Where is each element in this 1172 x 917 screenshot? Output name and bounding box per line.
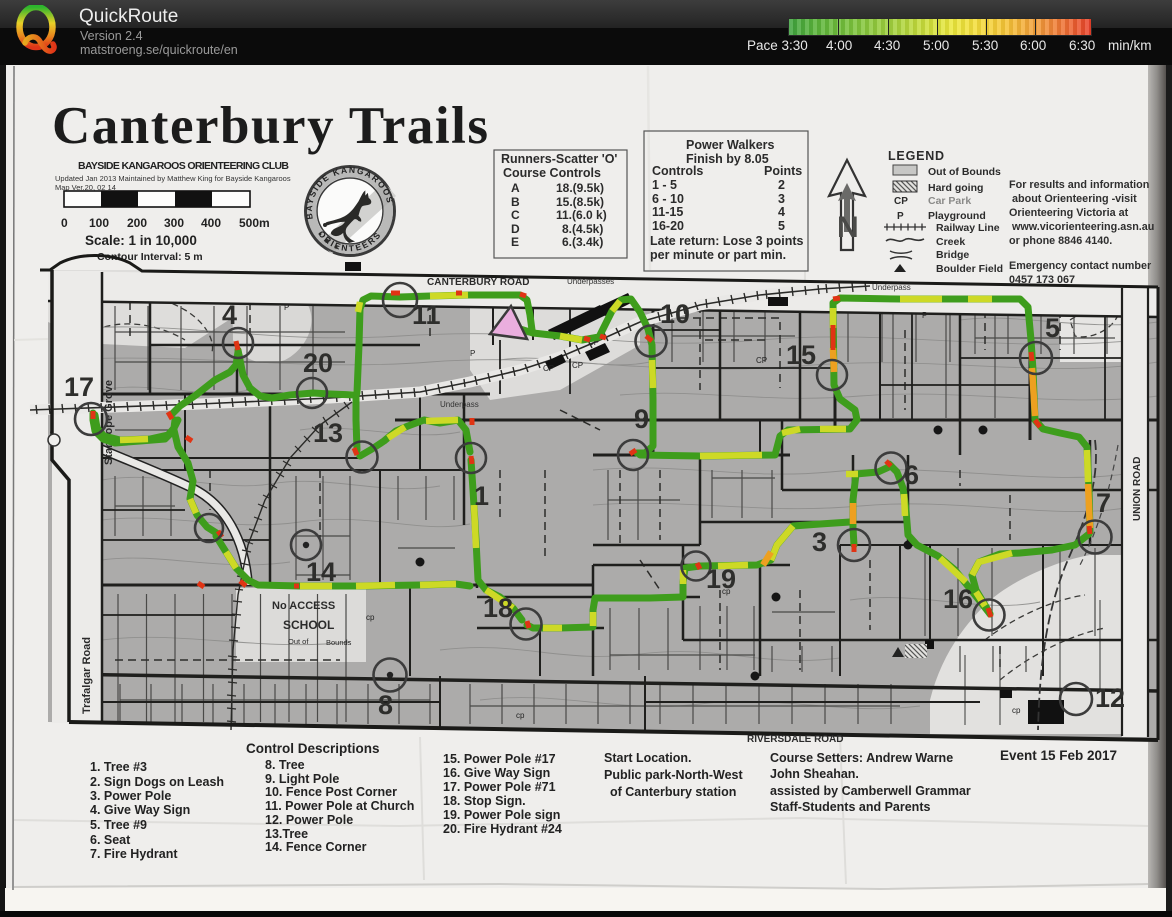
svg-text:Course Controls: Course Controls bbox=[503, 166, 601, 180]
svg-text:Bridge: Bridge bbox=[936, 249, 969, 261]
svg-text:Power Walkers: Power Walkers bbox=[686, 138, 775, 152]
svg-text:15: 15 bbox=[786, 340, 816, 370]
svg-text:Trafalgar Road: Trafalgar Road bbox=[81, 637, 93, 714]
svg-text:Controls: Controls bbox=[652, 164, 703, 178]
svg-text:RIVERSDALE ROAD: RIVERSDALE ROAD bbox=[747, 734, 844, 745]
svg-text:N: N bbox=[837, 211, 859, 244]
svg-text:Playground: Playground bbox=[928, 210, 986, 222]
svg-text:E: E bbox=[511, 235, 519, 249]
svg-text:Updated Jan 2013 Maintained by: Updated Jan 2013 Maintained by Matthew K… bbox=[55, 174, 291, 183]
svg-text:4. Give Way Sign: 4. Give Way Sign bbox=[90, 803, 190, 817]
svg-text:100: 100 bbox=[89, 216, 109, 230]
svg-text:John Sheahan.: John Sheahan. bbox=[770, 767, 859, 781]
svg-text:12. Power Pole: 12. Power Pole bbox=[265, 813, 353, 827]
svg-text:LEGEND: LEGEND bbox=[888, 149, 945, 163]
svg-text:15. Power Pole #17: 15. Power Pole #17 bbox=[443, 752, 556, 766]
svg-text:cp: cp bbox=[1012, 706, 1021, 715]
svg-text:assisted by Camberwell Grammar: assisted by Camberwell Grammar bbox=[770, 784, 971, 798]
svg-text:Railway Line: Railway Line bbox=[936, 222, 1000, 234]
svg-text:20. Fire Hydrant #24: 20. Fire Hydrant #24 bbox=[443, 822, 562, 836]
svg-text:Out of: Out of bbox=[288, 637, 309, 646]
svg-text:Emergency contact number: Emergency contact number bbox=[1009, 260, 1152, 272]
svg-text:UNION ROAD: UNION ROAD bbox=[1132, 457, 1143, 521]
svg-text:CP: CP bbox=[756, 356, 767, 365]
svg-text:18: 18 bbox=[483, 593, 513, 623]
svg-text:cp: cp bbox=[516, 711, 525, 720]
svg-text:No ACCESS: No ACCESS bbox=[272, 600, 335, 612]
svg-text:CP: CP bbox=[572, 361, 583, 370]
svg-text:Hard going: Hard going bbox=[928, 182, 983, 194]
svg-text:7. Fire Hydrant: 7. Fire Hydrant bbox=[90, 847, 178, 861]
svg-text:Boulder Field: Boulder Field bbox=[936, 263, 1003, 275]
svg-text:Course Setters: Andrew Warne: Course Setters: Andrew Warne bbox=[770, 751, 953, 765]
svg-text:Out of Bounds: Out of Bounds bbox=[928, 166, 1001, 178]
svg-text:9. Light Pole: 9. Light Pole bbox=[265, 772, 339, 786]
svg-text:17. Power Pole #71: 17. Power Pole #71 bbox=[443, 780, 556, 794]
svg-text:11. Power Pole at Church: 11. Power Pole at Church bbox=[265, 799, 414, 813]
svg-text:5: 5 bbox=[1045, 313, 1060, 343]
svg-text:16-20: 16-20 bbox=[652, 219, 684, 233]
svg-text:4: 4 bbox=[222, 300, 237, 330]
svg-text:4: 4 bbox=[778, 205, 785, 219]
svg-text:per minute or part min.: per minute or part min. bbox=[650, 248, 786, 262]
svg-text:6. Seat: 6. Seat bbox=[90, 833, 131, 847]
svg-text:Event 15 Feb 2017: Event 15 Feb 2017 bbox=[1000, 748, 1117, 763]
svg-text:Creek: Creek bbox=[936, 236, 965, 248]
svg-text:A: A bbox=[511, 181, 520, 195]
svg-text:D: D bbox=[511, 222, 520, 236]
svg-text:20: 20 bbox=[303, 348, 333, 378]
svg-text:19. Power Pole sign: 19. Power Pole sign bbox=[443, 808, 560, 822]
svg-text:Control Descriptions: Control Descriptions bbox=[246, 741, 380, 756]
svg-text:BAYSIDE KANGAROOS ORIENTEERING: BAYSIDE KANGAROOS ORIENTEERING CLUB bbox=[78, 160, 289, 172]
svg-text:Scale: 1 in 10,000: Scale: 1 in 10,000 bbox=[85, 233, 197, 248]
svg-text:3. Power Pole: 3. Power Pole bbox=[90, 789, 171, 803]
svg-text:5: 5 bbox=[778, 219, 785, 233]
svg-text:3: 3 bbox=[812, 527, 827, 557]
svg-text:P: P bbox=[470, 349, 475, 358]
svg-text:CANTERBURY ROAD: CANTERBURY ROAD bbox=[427, 277, 530, 288]
svg-text:Start Location.: Start Location. bbox=[604, 751, 692, 765]
svg-text:14: 14 bbox=[306, 557, 336, 587]
svg-text:P: P bbox=[897, 211, 904, 222]
svg-text:Underpass: Underpass bbox=[440, 400, 479, 409]
svg-text:400: 400 bbox=[201, 216, 221, 230]
svg-text:2. Sign Dogs on Leash: 2. Sign Dogs on Leash bbox=[90, 775, 224, 789]
svg-text:P: P bbox=[284, 303, 289, 312]
svg-text:Bounds: Bounds bbox=[326, 638, 352, 647]
svg-text:1 - 5: 1 - 5 bbox=[652, 178, 677, 192]
svg-text:For results and information: For results and information bbox=[1009, 179, 1149, 191]
svg-text:8. Tree: 8. Tree bbox=[265, 758, 305, 772]
svg-text:9: 9 bbox=[634, 404, 649, 434]
svg-text:16. Give Way Sign: 16. Give Way Sign bbox=[443, 766, 550, 780]
svg-text:16: 16 bbox=[943, 584, 973, 614]
svg-text:B: B bbox=[511, 195, 520, 209]
svg-text:18. Stop Sign.: 18. Stop Sign. bbox=[443, 794, 526, 808]
svg-text:cp: cp bbox=[366, 613, 375, 622]
svg-text:500m: 500m bbox=[239, 216, 270, 230]
svg-text:17: 17 bbox=[64, 372, 94, 402]
svg-text:about Orienteering -visit: about Orienteering -visit bbox=[1012, 193, 1137, 205]
svg-text:15.(8.5k): 15.(8.5k) bbox=[556, 195, 604, 209]
svg-text:Underpasses: Underpasses bbox=[567, 277, 614, 286]
svg-text:CP: CP bbox=[894, 196, 908, 207]
svg-text:Orienteering Victoria at: Orienteering Victoria at bbox=[1009, 207, 1129, 219]
svg-text:C: C bbox=[511, 208, 520, 222]
svg-text:5. Tree #9: 5. Tree #9 bbox=[90, 818, 147, 832]
svg-text:Car Park: Car Park bbox=[928, 195, 971, 207]
svg-text:300: 300 bbox=[164, 216, 184, 230]
svg-text:13: 13 bbox=[313, 418, 343, 448]
svg-text:10. Fence Post Corner: 10. Fence Post Corner bbox=[265, 785, 397, 799]
svg-text:6: 6 bbox=[904, 460, 919, 490]
svg-text:1: 1 bbox=[474, 481, 489, 511]
svg-text:13.Tree: 13.Tree bbox=[265, 827, 308, 841]
svg-text:www.vicorienteering.asn.au: www.vicorienteering.asn.au bbox=[1011, 221, 1154, 233]
svg-text:14. Fence Corner: 14. Fence Corner bbox=[265, 840, 367, 854]
svg-text:CP: CP bbox=[543, 364, 554, 373]
svg-text:200: 200 bbox=[127, 216, 147, 230]
svg-text:Staff-Students and Parents: Staff-Students and Parents bbox=[770, 800, 930, 814]
svg-text:8.(4.5k): 8.(4.5k) bbox=[562, 222, 603, 236]
svg-text:6.(3.4k): 6.(3.4k) bbox=[562, 235, 603, 249]
svg-text:Public park-North-West: Public park-North-West bbox=[604, 768, 744, 782]
svg-text:Canterbury Trails: Canterbury Trails bbox=[52, 97, 488, 155]
svg-text:Underpass: Underpass bbox=[872, 283, 911, 292]
svg-text:6 - 10: 6 - 10 bbox=[652, 192, 684, 206]
svg-text:8: 8 bbox=[378, 690, 393, 720]
svg-text:Late return: Lose 3 points: Late return: Lose 3 points bbox=[650, 234, 804, 248]
svg-text:0: 0 bbox=[61, 216, 68, 230]
svg-text:SCHOOL: SCHOOL bbox=[283, 618, 334, 632]
svg-text:P: P bbox=[922, 311, 927, 320]
svg-text:18.(9.5k): 18.(9.5k) bbox=[556, 181, 604, 195]
svg-text:12: 12 bbox=[1095, 683, 1125, 713]
svg-text:of Canterbury station: of Canterbury station bbox=[610, 785, 736, 799]
svg-text:11: 11 bbox=[412, 300, 441, 330]
svg-text:or phone 8846 4140.: or phone 8846 4140. bbox=[1009, 235, 1112, 247]
svg-text:10: 10 bbox=[660, 299, 690, 329]
svg-text:Stanhope Grove: Stanhope Grove bbox=[103, 380, 115, 465]
svg-text:11-15: 11-15 bbox=[652, 205, 683, 219]
svg-text:Points: Points bbox=[764, 164, 802, 178]
svg-text:7: 7 bbox=[1096, 488, 1111, 518]
svg-text:Runners-Scatter 'O': Runners-Scatter 'O' bbox=[501, 152, 617, 166]
svg-text:19: 19 bbox=[706, 564, 736, 594]
svg-text:2: 2 bbox=[778, 178, 785, 192]
svg-text:3: 3 bbox=[778, 192, 785, 206]
svg-text:11.(6.0 k): 11.(6.0 k) bbox=[556, 208, 607, 222]
svg-text:1. Tree #3: 1. Tree #3 bbox=[90, 760, 147, 774]
